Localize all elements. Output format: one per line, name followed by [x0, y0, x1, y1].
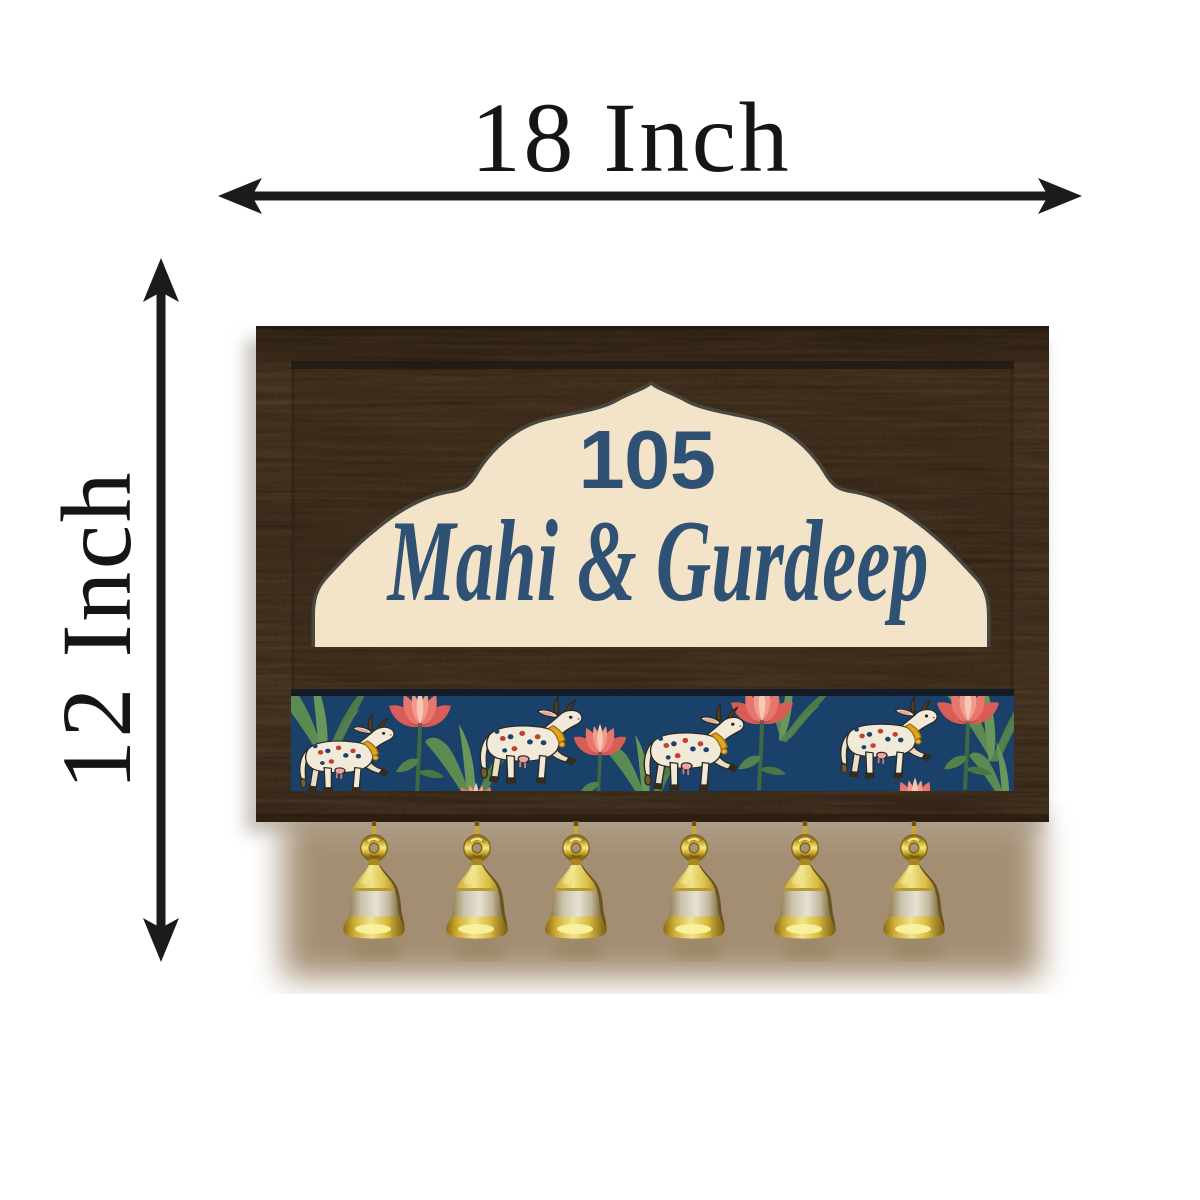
- svg-text:18 Inch: 18 Inch: [471, 82, 791, 193]
- svg-text:105: 105: [579, 413, 716, 506]
- svg-text:12 Inch: 12 Inch: [41, 470, 152, 790]
- svg-text:Mahi & Gurdeep: Mahi & Gurdeep: [386, 497, 928, 626]
